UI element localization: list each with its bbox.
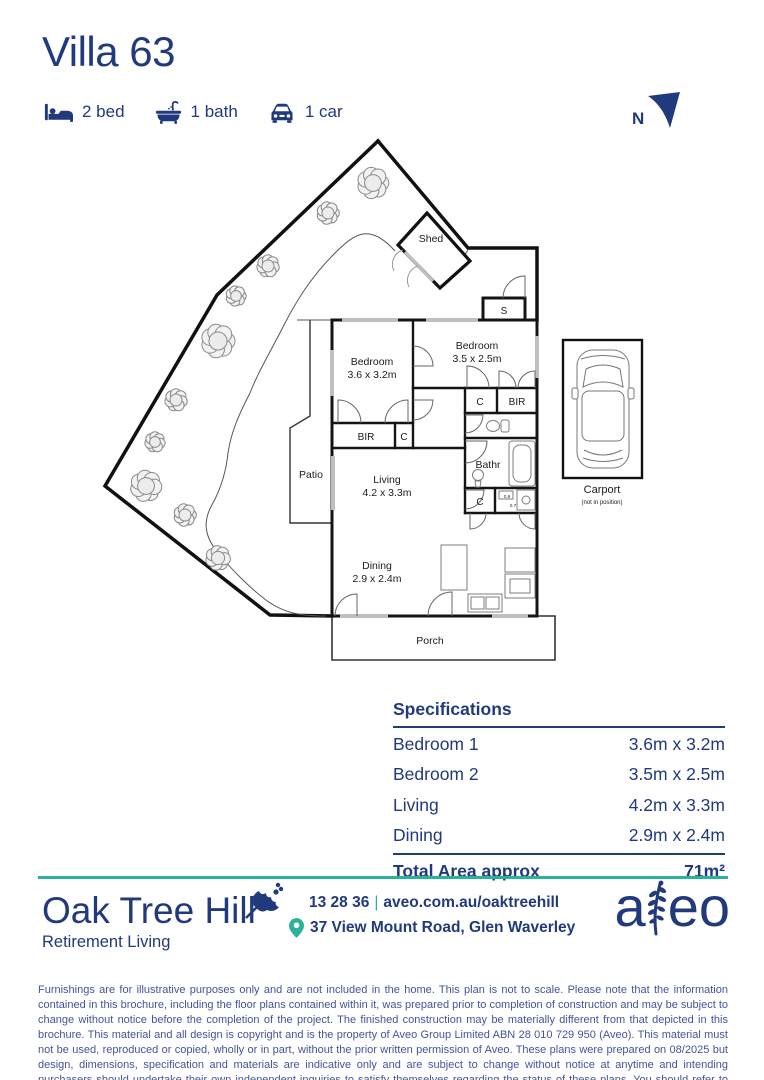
tree-icon xyxy=(145,432,165,452)
room-label-bir1: BIR xyxy=(358,432,375,443)
room-label-porch: Porch xyxy=(416,635,444,647)
contact-block: 13 28 36|aveo.com.au/oaktreehill 37 View… xyxy=(289,894,575,938)
oak-leaf-icon xyxy=(240,880,286,920)
feature-cars: 1 car xyxy=(268,101,343,123)
room-dims-living: 4.2 x 3.3m xyxy=(362,487,411,499)
table-row: Dining 2.9m x 2.4m xyxy=(393,820,725,851)
laundry-dim1: 0.9 xyxy=(504,494,511,499)
room-label-living: Living xyxy=(373,474,401,486)
room-label-bathroom: Bathr xyxy=(475,459,501,471)
laundry-dim2: 0.7 xyxy=(510,503,517,508)
aveo-leaf-v-icon xyxy=(644,878,670,936)
room-dims-dining: 2.9 x 2.4m xyxy=(352,573,401,585)
spec-value: 3.5m x 2.5m xyxy=(629,764,725,785)
room-label-dining: Dining xyxy=(362,560,392,572)
room-label-carport: Carport xyxy=(584,484,621,496)
north-indicator: N xyxy=(624,90,688,143)
pantry xyxy=(441,545,467,590)
room-label-bedroom1: Bedroom xyxy=(351,356,394,368)
spec-label: Bedroom 2 xyxy=(393,764,479,785)
aveo-letters-eo: eo xyxy=(668,876,730,938)
phone-number: 13 28 36 xyxy=(309,894,369,911)
feature-beds: 2 bed xyxy=(44,102,125,123)
spec-label: Living xyxy=(393,795,439,816)
aveo-letter-a: a xyxy=(615,876,646,938)
bath-icon xyxy=(155,100,182,124)
shed: Shed xyxy=(392,213,470,288)
room-label-closet1: C xyxy=(400,432,407,443)
spec-value: 3.6m x 3.2m xyxy=(629,734,725,755)
room-label-bedroom2: Bedroom xyxy=(456,340,499,352)
carport-note: (not in position) xyxy=(581,500,622,506)
patio-outline xyxy=(290,320,333,523)
disclaimer-text: Furnishings are for illustrative purpose… xyxy=(38,983,728,1080)
room-dims-bedroom2: 3.5 x 2.5m xyxy=(452,353,501,365)
tree-icon xyxy=(202,324,235,358)
brochure-page: Villa 63 2 bed 1 bath xyxy=(0,0,764,1080)
room-dims-bedroom1: 3.6 x 3.2m xyxy=(347,369,396,381)
contact-separator: | xyxy=(369,894,383,911)
community-name: Oak Tree Hill xyxy=(42,892,256,929)
toilet-icon xyxy=(487,421,500,432)
room-label-closet3: C xyxy=(476,497,483,508)
spec-value: 2.9m x 2.4m xyxy=(629,825,725,846)
room-label-patio: Patio xyxy=(299,469,323,481)
spec-label: Dining xyxy=(393,825,443,846)
room-label-closet2: C xyxy=(476,397,483,408)
basin-icon xyxy=(473,470,484,481)
website-url: aveo.com.au/oaktreehill xyxy=(383,894,559,911)
tree-icon xyxy=(131,470,162,501)
feature-beds-label: 2 bed xyxy=(82,102,125,122)
floor-plan: Shed xyxy=(100,138,660,683)
feature-cars-label: 1 car xyxy=(305,102,343,122)
spec-value: 4.2m x 3.3m xyxy=(629,795,725,816)
specifications-table: Specifications Bedroom 1 3.6m x 3.2m Bed… xyxy=(393,699,725,882)
car-top-view-icon xyxy=(572,350,634,468)
bed-icon xyxy=(44,102,73,123)
north-letter: N xyxy=(632,109,644,128)
feature-baths-label: 1 bath xyxy=(191,102,238,122)
tree-icon xyxy=(165,389,187,411)
north-arrow-icon: N xyxy=(624,90,688,138)
table-row: Bedroom 2 3.5m x 2.5m xyxy=(393,759,725,790)
spec-label: Bedroom 1 xyxy=(393,734,479,755)
carport: Carport (not in position) xyxy=(563,340,642,506)
feature-summary: 2 bed 1 bath 1 car xyxy=(44,100,343,124)
page-title: Villa 63 xyxy=(42,28,175,76)
car-icon xyxy=(268,101,296,123)
location-pin-icon xyxy=(289,918,304,938)
room-label-storage: S xyxy=(501,306,508,317)
community-logo: Oak Tree Hill Retirement Living xyxy=(42,892,256,952)
room-label-bir2: BIR xyxy=(509,397,526,408)
community-tagline: Retirement Living xyxy=(42,933,256,952)
contact-address-row: 37 View Mount Road, Glen Waverley xyxy=(289,918,575,938)
room-label-shed: Shed xyxy=(419,233,444,245)
table-row: Living 4.2m x 3.3m xyxy=(393,789,725,820)
table-row: Bedroom 1 3.6m x 3.2m xyxy=(393,728,725,759)
aveo-logo: aveo a eo xyxy=(615,876,730,938)
fridge-space xyxy=(505,548,535,572)
street-address: 37 View Mount Road, Glen Waverley xyxy=(310,919,575,937)
feature-baths: 1 bath xyxy=(155,100,238,124)
tree-icon xyxy=(174,504,196,526)
tree-icon xyxy=(317,202,339,224)
tree-icon xyxy=(358,167,389,198)
tree-icon xyxy=(226,286,246,306)
contact-phone-web: 13 28 36|aveo.com.au/oaktreehill xyxy=(309,894,575,912)
specifications-title: Specifications xyxy=(393,699,725,728)
tree-icon xyxy=(257,255,279,277)
